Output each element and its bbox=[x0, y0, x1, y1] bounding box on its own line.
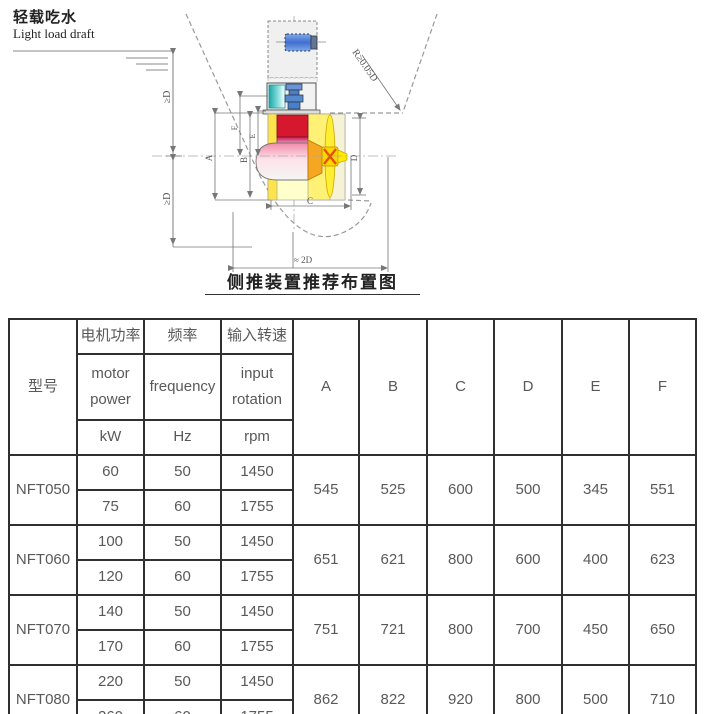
freq-cell: 50 bbox=[144, 455, 221, 490]
dim-d-cell: 700 bbox=[494, 595, 562, 665]
dim-a-cell: 651 bbox=[293, 525, 359, 595]
header-power-unit: kW bbox=[77, 420, 144, 455]
rpm-cell: 1755 bbox=[221, 560, 293, 595]
header-row-cn: 型号 电机功率 频率 输入转速 A B C D E F bbox=[9, 319, 696, 354]
power-cell: 170 bbox=[77, 630, 144, 665]
power-cell: 120 bbox=[77, 560, 144, 595]
header-dim-c: C bbox=[427, 319, 494, 455]
dim-e-label: E bbox=[248, 133, 257, 138]
freq-cell: 50 bbox=[144, 525, 221, 560]
header-freq-unit: Hz bbox=[144, 420, 221, 455]
dim-e-cell: 500 bbox=[562, 665, 629, 714]
table-row: NFT050 60 50 1450 545 525 600 500 345 55… bbox=[9, 455, 696, 490]
depth-above-label: ≥D bbox=[162, 91, 173, 104]
dim-d-cell: 600 bbox=[494, 525, 562, 595]
dim-b-cell: 525 bbox=[359, 455, 427, 525]
table-row: NFT060 100 50 1450 651 621 800 600 400 6… bbox=[9, 525, 696, 560]
dim-c-cell: 800 bbox=[427, 595, 494, 665]
dim-f-cell: 710 bbox=[629, 665, 696, 714]
header-rotation-en: input rotation bbox=[221, 354, 293, 420]
dim-a-cell: 751 bbox=[293, 595, 359, 665]
power-cell: 60 bbox=[77, 455, 144, 490]
rpm-cell: 1450 bbox=[221, 525, 293, 560]
model-cell: NFT070 bbox=[9, 595, 77, 665]
dim-d-cell: 800 bbox=[494, 665, 562, 714]
page: 轻载吃水 Light load draft bbox=[0, 0, 707, 714]
header-model: 型号 bbox=[9, 319, 77, 455]
header-dim-b: B bbox=[359, 319, 427, 455]
freq-cell: 50 bbox=[144, 665, 221, 700]
thruster-layout-diagram: 轻载吃水 Light load draft bbox=[0, 0, 707, 318]
depth-below-label: ≥D bbox=[162, 193, 173, 206]
dim-e-cell: 400 bbox=[562, 525, 629, 595]
header-dim-e: E bbox=[562, 319, 629, 455]
dim-c-cell: 600 bbox=[427, 455, 494, 525]
shaft-coupling bbox=[285, 84, 303, 109]
waterline bbox=[13, 51, 173, 70]
dim-e-cell: 450 bbox=[562, 595, 629, 665]
freq-cell: 50 bbox=[144, 595, 221, 630]
dim-b-cell: 721 bbox=[359, 595, 427, 665]
dim-f-cell: 650 bbox=[629, 595, 696, 665]
motor-compartment bbox=[268, 21, 317, 83]
dim-f-label: F bbox=[230, 125, 239, 130]
header-dim-a: A bbox=[293, 319, 359, 455]
width-approx-label: ≈ 2D bbox=[294, 255, 313, 265]
dim-b-cell: 822 bbox=[359, 665, 427, 714]
rpm-cell: 1450 bbox=[221, 595, 293, 630]
dim-a-cell: 545 bbox=[293, 455, 359, 525]
power-cell: 75 bbox=[77, 490, 144, 525]
model-cell: NFT080 bbox=[9, 665, 77, 714]
header-power-cn: 电机功率 bbox=[77, 319, 144, 354]
freq-cell: 60 bbox=[144, 700, 221, 714]
dim-b-label: B bbox=[239, 157, 249, 163]
dim-c-cell: 920 bbox=[427, 665, 494, 714]
power-cell: 100 bbox=[77, 525, 144, 560]
spec-table: 型号 电机功率 频率 输入转速 A B C D E F motor power … bbox=[8, 318, 697, 714]
draft-label-en: Light load draft bbox=[13, 26, 95, 42]
rpm-cell: 1755 bbox=[221, 700, 293, 714]
table-row: NFT080 220 50 1450 862 822 920 800 500 7… bbox=[9, 665, 696, 700]
draft-label-cn: 轻载吃水 bbox=[13, 6, 77, 27]
hub-cone bbox=[308, 140, 322, 180]
dim-f-cell: 551 bbox=[629, 455, 696, 525]
dim-f-cell: 623 bbox=[629, 525, 696, 595]
header-freq-cn: 频率 bbox=[144, 319, 221, 354]
dim-a-label: A bbox=[204, 154, 214, 161]
gear-pod bbox=[256, 143, 308, 180]
freq-cell: 60 bbox=[144, 490, 221, 525]
radius-label: R≥0.05D bbox=[350, 47, 380, 84]
freq-cell: 60 bbox=[144, 630, 221, 665]
dim-d-cell: 500 bbox=[494, 455, 562, 525]
mounting-flange bbox=[263, 110, 320, 114]
diagram-caption: 侧推装置推荐布置图 bbox=[205, 268, 420, 295]
model-cell: NFT060 bbox=[9, 525, 77, 595]
upper-gear-housing bbox=[267, 83, 316, 110]
dim-e-cell: 345 bbox=[562, 455, 629, 525]
header-rotation-cn: 输入转速 bbox=[221, 319, 293, 354]
dim-d-label: D bbox=[349, 154, 359, 161]
power-cell: 140 bbox=[77, 595, 144, 630]
model-cell: NFT050 bbox=[9, 455, 77, 525]
rpm-cell: 1755 bbox=[221, 490, 293, 525]
header-dim-d: D bbox=[494, 319, 562, 455]
header-dim-f: F bbox=[629, 319, 696, 455]
table-row: NFT070 140 50 1450 751 721 800 700 450 6… bbox=[9, 595, 696, 630]
power-cell: 220 bbox=[77, 665, 144, 700]
rpm-cell: 1755 bbox=[221, 630, 293, 665]
lower-gearbox bbox=[277, 115, 308, 143]
dim-c-label: C bbox=[307, 196, 313, 206]
header-freq-en: frequency bbox=[144, 354, 221, 420]
power-cell: 260 bbox=[77, 700, 144, 714]
spec-table-wrap: 型号 电机功率 频率 输入转速 A B C D E F motor power … bbox=[8, 318, 697, 714]
rpm-cell: 1450 bbox=[221, 665, 293, 700]
rpm-cell: 1450 bbox=[221, 455, 293, 490]
submergence-dimension bbox=[166, 51, 252, 247]
dim-a-cell: 862 bbox=[293, 665, 359, 714]
header-rotation-unit: rpm bbox=[221, 420, 293, 455]
dim-b-cell: 621 bbox=[359, 525, 427, 595]
dim-c-cell: 800 bbox=[427, 525, 494, 595]
freq-cell: 60 bbox=[144, 560, 221, 595]
header-power-en: motor power bbox=[77, 354, 144, 420]
